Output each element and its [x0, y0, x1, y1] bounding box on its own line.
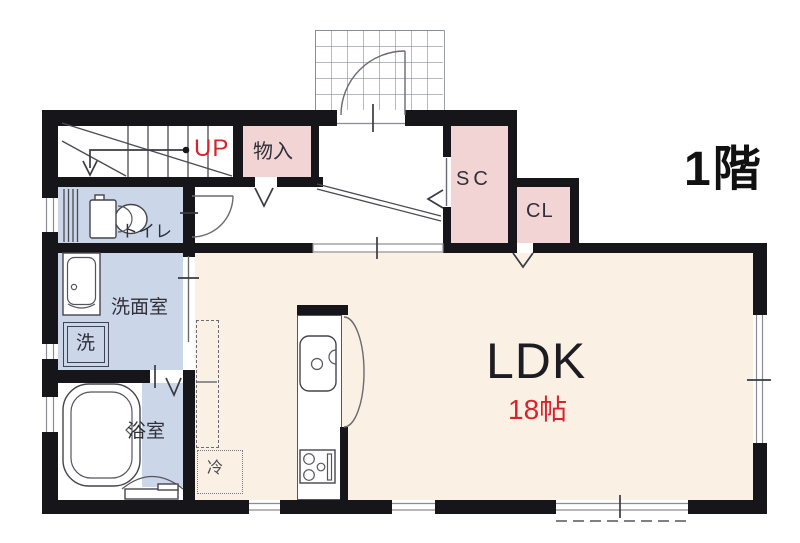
- washroom-label: 洗面室: [111, 298, 168, 317]
- ldk-size-label: 18帖: [508, 396, 567, 424]
- storage-door-opening: [255, 177, 277, 187]
- closet-label: CL: [526, 201, 554, 221]
- wall-storage-right: [311, 110, 319, 187]
- front-door-opening: [337, 110, 405, 126]
- wall-sc-left-bot: [443, 207, 451, 253]
- window-left-bathroom: [42, 397, 58, 432]
- storage-label: 物入: [253, 142, 293, 162]
- shoe-closet-label: SC: [456, 169, 492, 189]
- bathroom-label: 浴室: [127, 422, 165, 441]
- wall-ldk-top-b: [443, 243, 517, 253]
- wall-bath-divider: [42, 370, 150, 383]
- window-right-ldk: [753, 315, 767, 443]
- window-bottom-small-1: [249, 500, 280, 514]
- wall-storage-left: [233, 110, 243, 187]
- wall-ldk-top-a: [42, 243, 313, 253]
- refrigerator-label: 冷: [207, 461, 223, 477]
- floor-plan: 1階 UP 物入 SC CL トイレ 洗面室 洗 浴室 LDK 18帖 冷: [0, 0, 800, 543]
- sc-door-opening: [443, 157, 451, 207]
- wall-kitchen-right: [340, 427, 348, 500]
- bathroom-bottom-strip: [58, 487, 183, 500]
- stairs-up-arrow: [83, 147, 189, 175]
- stairs-up-label: UP: [194, 137, 229, 161]
- wall-sc-left-top: [443, 110, 451, 157]
- window-left-washroom: [42, 344, 58, 359]
- window-bottom-small-2: [392, 500, 435, 514]
- wall-washroom-right-top: [183, 243, 195, 257]
- kitchen-cupboard-dashed: [196, 320, 219, 448]
- storage-folding-door: [255, 188, 273, 206]
- hall-ldk-opening: [313, 243, 443, 253]
- floor-title: 1階: [684, 146, 763, 194]
- window-left-toilet: [42, 198, 58, 232]
- wall-stair-bottom-a: [42, 177, 255, 187]
- wall-sc-cl-divider: [508, 110, 517, 253]
- ldk-label: LDK: [486, 336, 586, 386]
- wall-ldk-top-c: [533, 243, 767, 253]
- toilet-label: トイレ: [121, 223, 172, 240]
- laundry-label: 洗: [76, 334, 95, 353]
- wall-left: [42, 110, 58, 514]
- porch-tile-grid: [315, 30, 443, 117]
- wall-cl-right: [570, 178, 579, 253]
- window-bottom-large: [556, 500, 688, 514]
- wall-top-left: [42, 110, 337, 126]
- wall-top-right: [405, 110, 517, 126]
- kitchen-counter: [297, 315, 342, 500]
- up-arrow-dot: [183, 147, 190, 154]
- room-ldk-area: [195, 253, 753, 500]
- wall-bathroom-right: [183, 383, 195, 500]
- room-genkan-area: [319, 126, 443, 218]
- wall-kitchen-top: [297, 305, 348, 315]
